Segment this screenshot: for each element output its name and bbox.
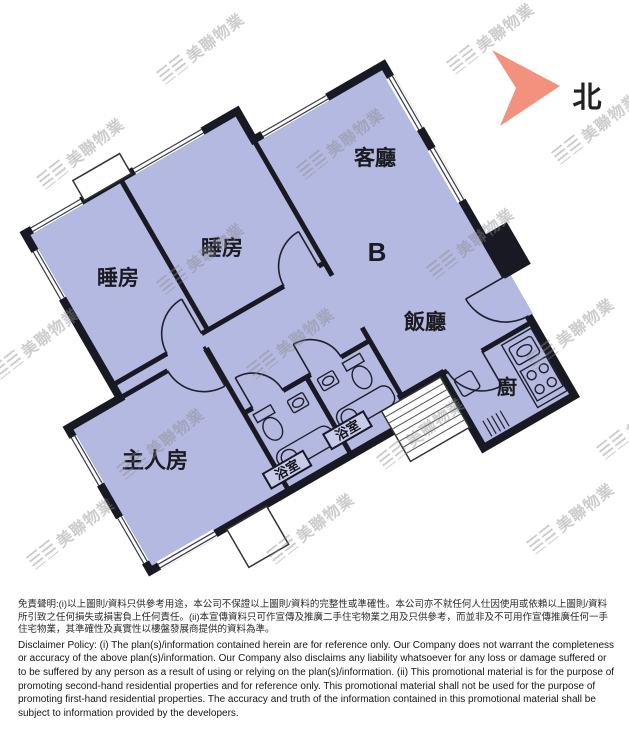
- disclaimer-chinese: 免責聲明:(i)以上圖則/資料只供參考用途，本公司不保證以上圖則/資料的完整性或…: [18, 599, 616, 637]
- north-arrow-icon: [492, 50, 560, 126]
- north-label: 北: [572, 81, 601, 114]
- floor-plan: 浴室 浴室: [0, 3, 599, 598]
- floor-plan-canvas: 浴室 浴室 客廳 睡房 睡房 B 飯廳 廚 主人房 北: [0, 0, 629, 598]
- floorplan-page: 浴室 浴室 客廳 睡房 睡房 B 飯廳 廚 主人房 北 美聯物業 美聯物: [0, 0, 629, 741]
- room-label-bedroom1: 睡房: [97, 266, 139, 290]
- room-label-living: 客廳: [354, 146, 396, 170]
- room-label-bedroom2: 睡房: [201, 236, 243, 260]
- disclaimer-english: Disclaimer Policy: (i) The plan(s)/infor…: [18, 639, 616, 721]
- room-label-kitchen: 廚: [497, 375, 517, 399]
- room-label-master: 主人房: [122, 448, 188, 473]
- unit-label: B: [368, 237, 387, 267]
- room-label-dining: 飯廳: [403, 310, 446, 334]
- disclaimer-block: 免責聲明:(i)以上圖則/資料只供參考用途，本公司不保證以上圖則/資料的完整性或…: [18, 599, 616, 720]
